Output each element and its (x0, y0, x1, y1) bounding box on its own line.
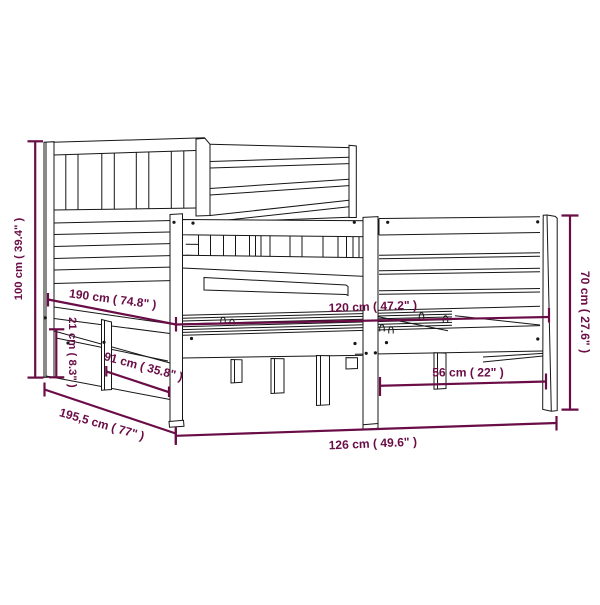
svg-text:21 cm ( 8.3" ): 21 cm ( 8.3" ) (66, 317, 78, 388)
svg-text:56 cm ( 22" ): 56 cm ( 22" ) (432, 366, 504, 380)
svg-text:70 cm ( 27.6" ): 70 cm ( 27.6" ) (578, 271, 592, 353)
svg-text:100 cm ( 39.4" ): 100 cm ( 39.4" ) (13, 217, 25, 300)
